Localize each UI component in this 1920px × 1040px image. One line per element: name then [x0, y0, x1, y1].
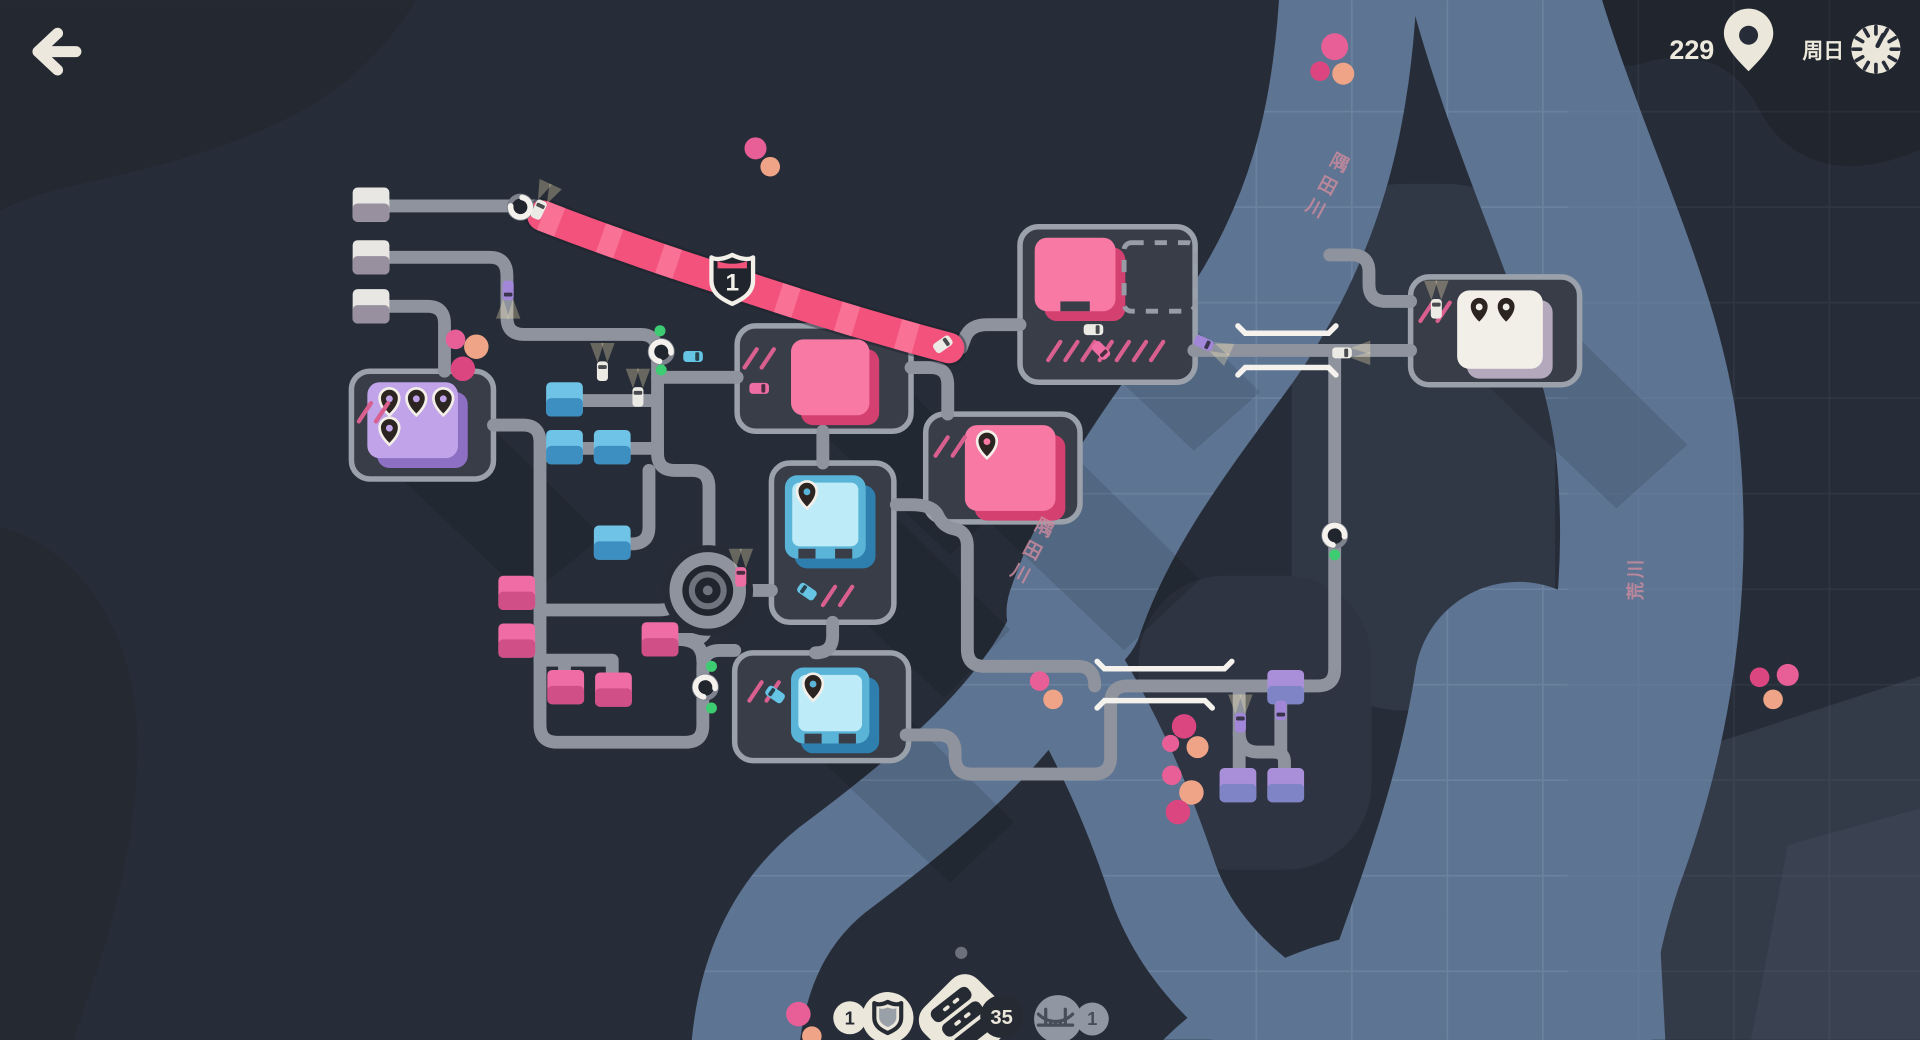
traffic-light[interactable]: [1323, 524, 1346, 547]
house-cyan: [594, 430, 631, 464]
demand-dot: [1187, 736, 1209, 758]
roundabout[interactable]: [662, 545, 753, 636]
destination-cyan: [791, 668, 879, 754]
demand-dot: [1030, 671, 1050, 691]
house-pink: [547, 670, 584, 704]
motorway-count: 1: [845, 1007, 855, 1028]
house-pink: [498, 623, 535, 657]
demand-dot: [955, 947, 967, 959]
score-value: 229: [1669, 35, 1714, 65]
demand-dot: [1162, 766, 1182, 786]
demand-dot: [786, 1002, 810, 1026]
house-cyan: [594, 526, 631, 560]
destination-pink: [791, 339, 879, 425]
demand-dot: [1750, 668, 1770, 688]
car-cyan: [683, 351, 703, 362]
traffic-light[interactable]: [694, 676, 717, 699]
house-purple: [1267, 768, 1304, 802]
motorway-number: 1: [725, 269, 739, 296]
house-white: [353, 240, 390, 274]
car-pink: [749, 383, 769, 394]
demand-dot: [451, 357, 475, 381]
demand-dot: [1310, 61, 1330, 81]
destination-white: [1457, 290, 1553, 378]
mini-motorways-city-map[interactable]: 1 隅田川隅田川荒川 229 周日 1: [0, 0, 1920, 1040]
demand-dot: [446, 330, 466, 350]
house-pink: [498, 576, 535, 610]
river-label: 荒川: [1625, 556, 1646, 601]
demand-dot: [744, 137, 766, 159]
traffic-light[interactable]: [509, 196, 532, 219]
house-white: [353, 188, 390, 222]
green-signal-dot: [1329, 549, 1340, 560]
house-purple: [1220, 768, 1257, 802]
car-white: [1084, 324, 1104, 335]
demand-dot: [464, 334, 488, 358]
house-cyan: [546, 382, 583, 416]
motorway-shield-badge: 1: [711, 255, 753, 304]
demand-dot: [760, 157, 780, 177]
demand-dot: [1162, 735, 1179, 752]
demand-dot: [1043, 690, 1063, 710]
destination-cyan: [785, 475, 876, 568]
house-cyan: [546, 430, 583, 464]
demand-dot: [1166, 800, 1190, 824]
house-pink: [642, 622, 679, 656]
day-label: 周日: [1802, 40, 1844, 63]
demand-dot: [1321, 33, 1348, 60]
destination-pink: [965, 425, 1065, 521]
demand-dot: [1172, 714, 1196, 738]
house-pink: [595, 672, 632, 706]
road-tiles-count: 35: [990, 1007, 1012, 1029]
green-signal-dot: [706, 702, 717, 713]
demand-dot: [1777, 664, 1799, 686]
game-viewport: 1 隅田川隅田川荒川 229 周日 1: [0, 0, 1920, 1040]
demand-dot: [1763, 690, 1783, 710]
house-purple: [1267, 670, 1304, 704]
green-signal-dot: [706, 661, 717, 672]
traffic-light[interactable]: [650, 340, 673, 363]
bridge-count: 1: [1087, 1008, 1097, 1029]
green-signal-dot: [654, 325, 665, 336]
car-purple: [1275, 701, 1286, 721]
demand-dot: [1332, 63, 1354, 85]
green-signal-dot: [656, 364, 667, 375]
house-white: [353, 289, 390, 323]
destination-purple: [367, 382, 467, 468]
clock-icon: [1851, 25, 1900, 74]
